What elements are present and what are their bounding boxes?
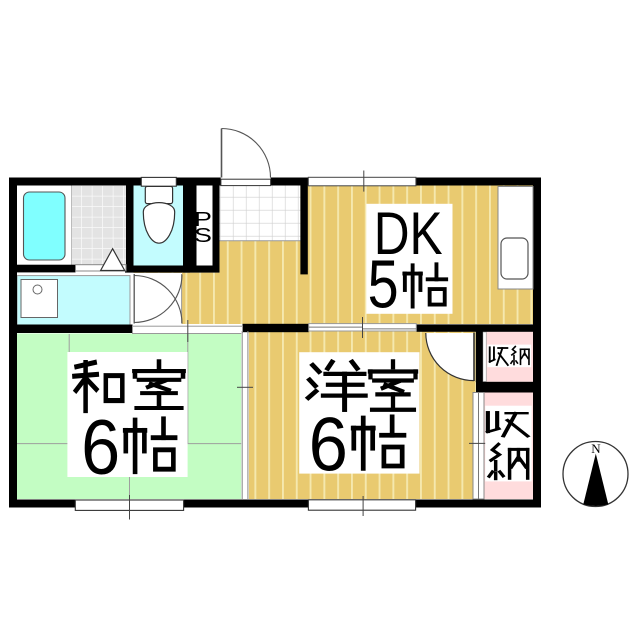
svg-text:6: 6 bbox=[309, 402, 348, 487]
svg-text:S: S bbox=[194, 224, 212, 247]
svg-text:N: N bbox=[591, 441, 601, 456]
svg-text:5: 5 bbox=[368, 247, 399, 322]
svg-text:6: 6 bbox=[81, 403, 120, 490]
